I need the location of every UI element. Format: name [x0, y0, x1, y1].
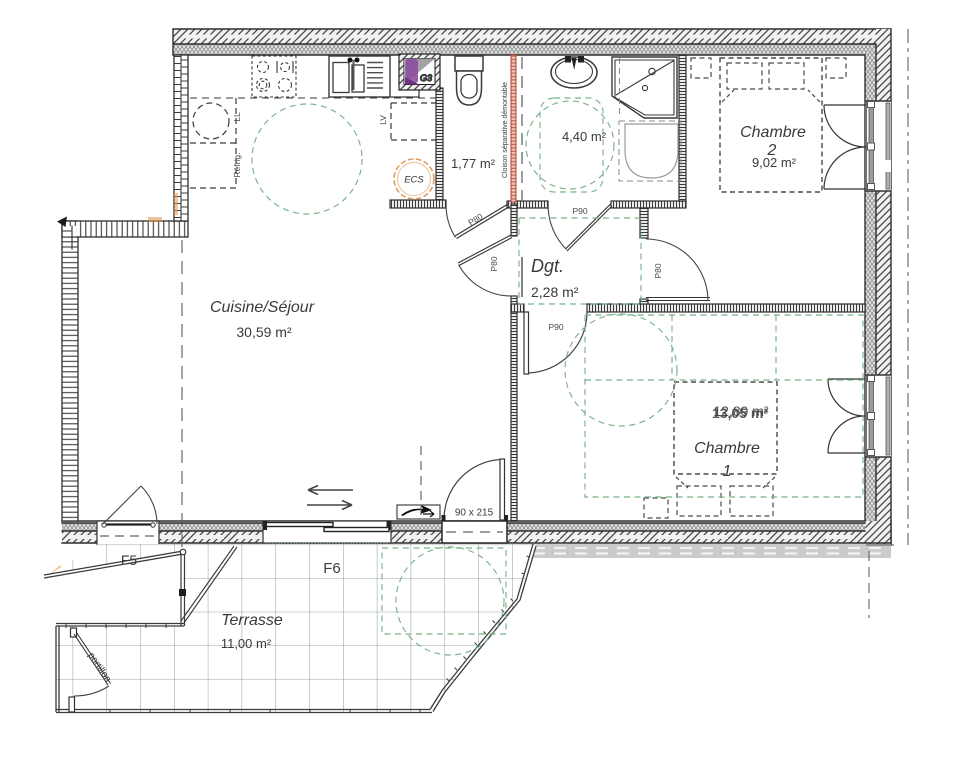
svg-text:2,28 m²: 2,28 m²	[531, 284, 579, 300]
svg-text:11,00 m²: 11,00 m²	[221, 636, 272, 651]
svg-text:90 x 215: 90 x 215	[455, 508, 494, 519]
svg-text:Réfrig.: Réfrig.	[232, 152, 242, 177]
svg-text:LL: LL	[232, 112, 242, 122]
svg-text:F5: F5	[121, 552, 138, 568]
svg-text:9,02 m²: 9,02 m²	[752, 155, 797, 170]
svg-text:F6: F6	[323, 560, 341, 577]
svg-text:Terrasse: Terrasse	[221, 612, 283, 629]
svg-text:LV: LV	[378, 115, 388, 125]
svg-text:P80: P80	[489, 256, 499, 271]
svg-text:12,89 m²: 12,89 m²	[713, 403, 769, 419]
svg-text:P90: P90	[548, 322, 563, 332]
svg-text:1,77 m²: 1,77 m²	[451, 156, 496, 171]
svg-text:P80: P80	[653, 263, 663, 278]
svg-text:Cloison séparative démontable: Cloison séparative démontable	[502, 82, 509, 178]
svg-text:Dgt.: Dgt.	[531, 256, 564, 276]
svg-text:ECS: ECS	[404, 175, 424, 186]
svg-text:4,40 m²: 4,40 m²	[562, 129, 607, 144]
svg-text:Chambre: Chambre	[740, 124, 806, 141]
svg-text:30,59 m²: 30,59 m²	[236, 324, 292, 340]
svg-text:Chambre: Chambre	[694, 440, 760, 457]
svg-text:G3: G3	[420, 73, 432, 83]
svg-text:1: 1	[723, 463, 732, 480]
svg-text:Cuisine/Séjour: Cuisine/Séjour	[210, 299, 315, 316]
svg-text:P90: P90	[572, 206, 587, 216]
